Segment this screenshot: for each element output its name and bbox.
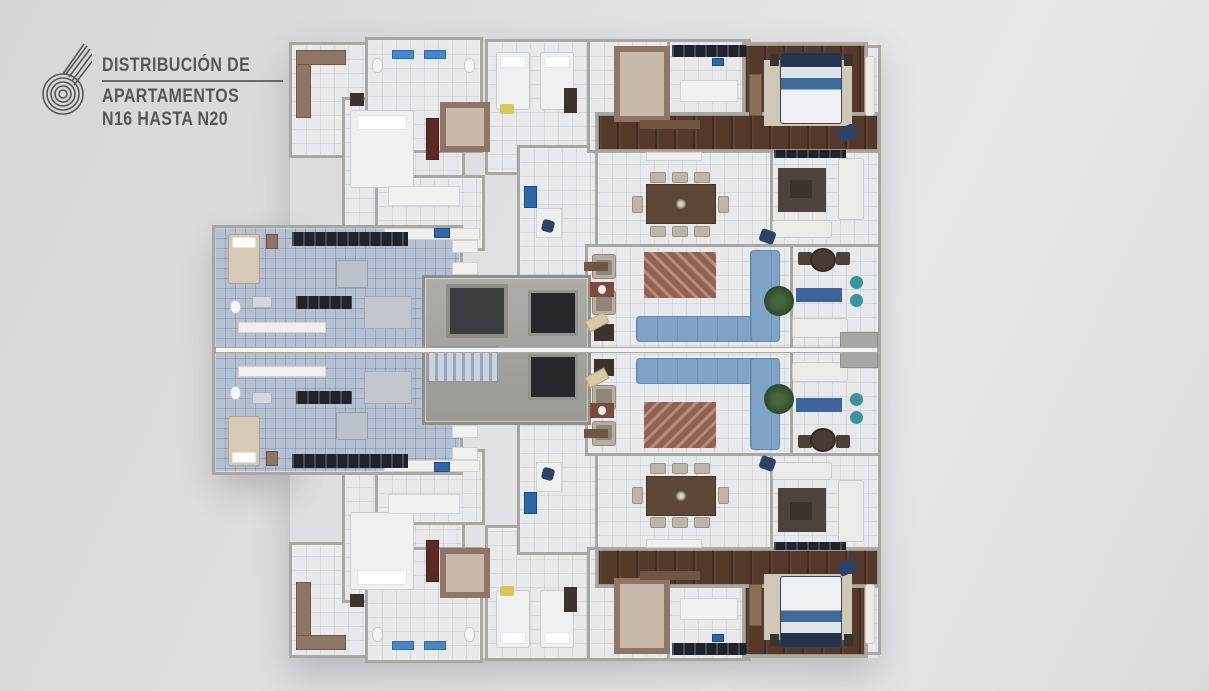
hall-console-mirror	[640, 571, 700, 580]
dining-chair-3	[694, 172, 710, 183]
sofa-long-mirror	[636, 358, 760, 384]
edge-lounge	[865, 56, 875, 116]
foyer-console-mirror	[584, 429, 608, 438]
fridge-blue	[524, 186, 537, 208]
dining-chair-5-mirror	[672, 463, 688, 474]
service-table-mirror	[336, 412, 368, 440]
vanity-1-mirror	[392, 641, 414, 650]
stove-blue	[434, 228, 450, 238]
service-toilet	[230, 300, 241, 314]
dining-chair-4-mirror	[650, 463, 666, 474]
closet-u-main	[614, 46, 670, 122]
floor-plan	[0, 0, 1209, 691]
kitchen-island-mirror	[680, 598, 738, 620]
dining-chair-2-mirror	[672, 517, 688, 528]
dresser-red	[426, 118, 439, 160]
dresser-red-mirror	[426, 540, 439, 582]
yellow-cushion-mirror	[500, 586, 514, 596]
service-bed-mirror	[228, 416, 260, 466]
dining-chair-3-mirror	[694, 517, 710, 528]
master-desk	[749, 74, 762, 116]
living-rug-mirror	[644, 402, 716, 448]
twin-dresser	[564, 88, 577, 113]
page: { "page_title": "Distribución de Apartam…	[0, 0, 1209, 691]
terrace-mat	[796, 288, 842, 302]
living-plant	[764, 286, 794, 316]
lobby-mat-mirror	[590, 403, 614, 418]
closet-u-main-mirror	[614, 578, 670, 654]
closet-u-small	[440, 102, 490, 152]
terrace-chair-2-mirror	[836, 435, 850, 448]
terrace-pouf-2	[850, 294, 863, 307]
dining-chair-8-mirror	[718, 487, 729, 504]
front-bed-mirror	[350, 512, 414, 590]
lounge-sofa-bottom-mirror	[772, 462, 832, 480]
front-bed-bench-mirror	[350, 594, 364, 607]
master-nightstand-2	[844, 54, 853, 66]
master-nightstand-2-mirror	[844, 634, 853, 646]
toilet-1-mirror	[372, 627, 383, 642]
terrace-table-mirror	[810, 428, 836, 452]
vanity-2-mirror	[424, 641, 446, 650]
lobby-mat	[590, 282, 614, 297]
dining-table	[646, 184, 716, 224]
closet-u-small-mirror	[440, 548, 490, 598]
twin-bed-1-mirror	[496, 590, 530, 648]
yellow-cushion	[500, 104, 514, 114]
dining-chair-6	[694, 226, 710, 237]
dining-chair-8	[718, 196, 729, 213]
laundry-unit-mirror	[364, 371, 412, 404]
service-counter-2-mirror	[296, 391, 352, 404]
service-sink	[252, 296, 272, 308]
toilet-2	[464, 58, 475, 73]
service-sink-mirror	[252, 392, 272, 404]
lounge-sofa-right	[838, 158, 864, 220]
service-nightstand	[266, 234, 278, 249]
lounge-coffee-table	[790, 180, 812, 198]
service-nightstand-mirror	[266, 451, 278, 466]
master-bed	[780, 52, 842, 124]
dining-chair-4	[650, 226, 666, 237]
lounge-sofa-right-mirror	[838, 480, 864, 542]
terrace-pouf-1-mirror	[850, 411, 863, 424]
laundry-shelf-1	[238, 322, 326, 333]
party-wall	[215, 347, 878, 353]
service-counter-mirror	[292, 454, 408, 468]
closet-niche-1	[452, 240, 478, 253]
laundry-unit	[364, 296, 412, 329]
dining-chair-1-mirror	[650, 517, 666, 528]
elevator-1	[528, 290, 578, 336]
fridge-blue-mirror	[524, 492, 537, 514]
dining-chair-7-mirror	[632, 487, 643, 504]
closet-niche-2	[452, 262, 478, 275]
kitchen-appliance-mirror	[712, 634, 724, 642]
lounge-coffee-table-mirror	[790, 502, 812, 520]
service-counter-2	[296, 296, 352, 309]
closet-niche-2-mirror	[452, 425, 478, 438]
living-plant-mirror	[764, 384, 794, 414]
terrace-table	[810, 248, 836, 272]
foyer-console	[584, 262, 608, 271]
closet-niche-1-mirror	[452, 447, 478, 460]
service-toilet-mirror	[230, 386, 241, 400]
sofa-long	[636, 316, 760, 342]
kitchen-counter-mirror	[672, 643, 746, 655]
terrace-pouf-2-mirror	[850, 393, 863, 406]
service-bed	[228, 234, 260, 284]
stairwell	[446, 284, 508, 338]
island-2	[388, 186, 460, 206]
twin-dresser-mirror	[564, 587, 577, 612]
kitchen-island	[680, 80, 738, 102]
island-2-mirror	[388, 494, 460, 514]
terrace-chair-2	[836, 252, 850, 265]
lounge-sofa-bottom	[772, 220, 832, 238]
service-counter	[292, 232, 408, 246]
toilet-2-mirror	[464, 627, 475, 642]
kitchen-appliance	[712, 58, 724, 66]
dining-chair-7	[632, 196, 643, 213]
terrace-mat-mirror	[796, 398, 842, 412]
dining-table-mirror	[646, 476, 716, 516]
tv-console-mirror	[774, 542, 846, 550]
dining-sideboard-mirror	[646, 539, 702, 548]
hall-console	[640, 120, 700, 129]
master-bed-mirror	[780, 576, 842, 648]
master-nightstand-1	[770, 54, 779, 66]
dining-chair-6-mirror	[694, 463, 710, 474]
toilet-1	[372, 58, 383, 73]
vanity-1	[392, 50, 414, 59]
vanity-2	[424, 50, 446, 59]
elevator-2	[528, 354, 578, 400]
terrace-pouf-1	[850, 276, 863, 289]
dining-chair-1	[650, 172, 666, 183]
edge-lounge-mirror	[865, 584, 875, 644]
kitchen-counter	[672, 45, 746, 57]
living-rug	[644, 252, 716, 298]
stove-blue-mirror	[434, 462, 450, 472]
master-nightstand-1-mirror	[770, 634, 779, 646]
front-bed	[350, 110, 414, 188]
master-desk-mirror	[749, 584, 762, 626]
front-bed-bench	[350, 93, 364, 106]
dining-sideboard	[646, 152, 702, 161]
dining-chair-5	[672, 226, 688, 237]
service-table	[336, 260, 368, 288]
tv-console	[774, 150, 846, 158]
twin-bed-1	[496, 52, 530, 110]
dining-chair-2	[672, 172, 688, 183]
corner-closet-h-mirror	[296, 635, 346, 650]
laundry-shelf-2	[238, 366, 326, 377]
corner-closet-h	[296, 50, 346, 65]
